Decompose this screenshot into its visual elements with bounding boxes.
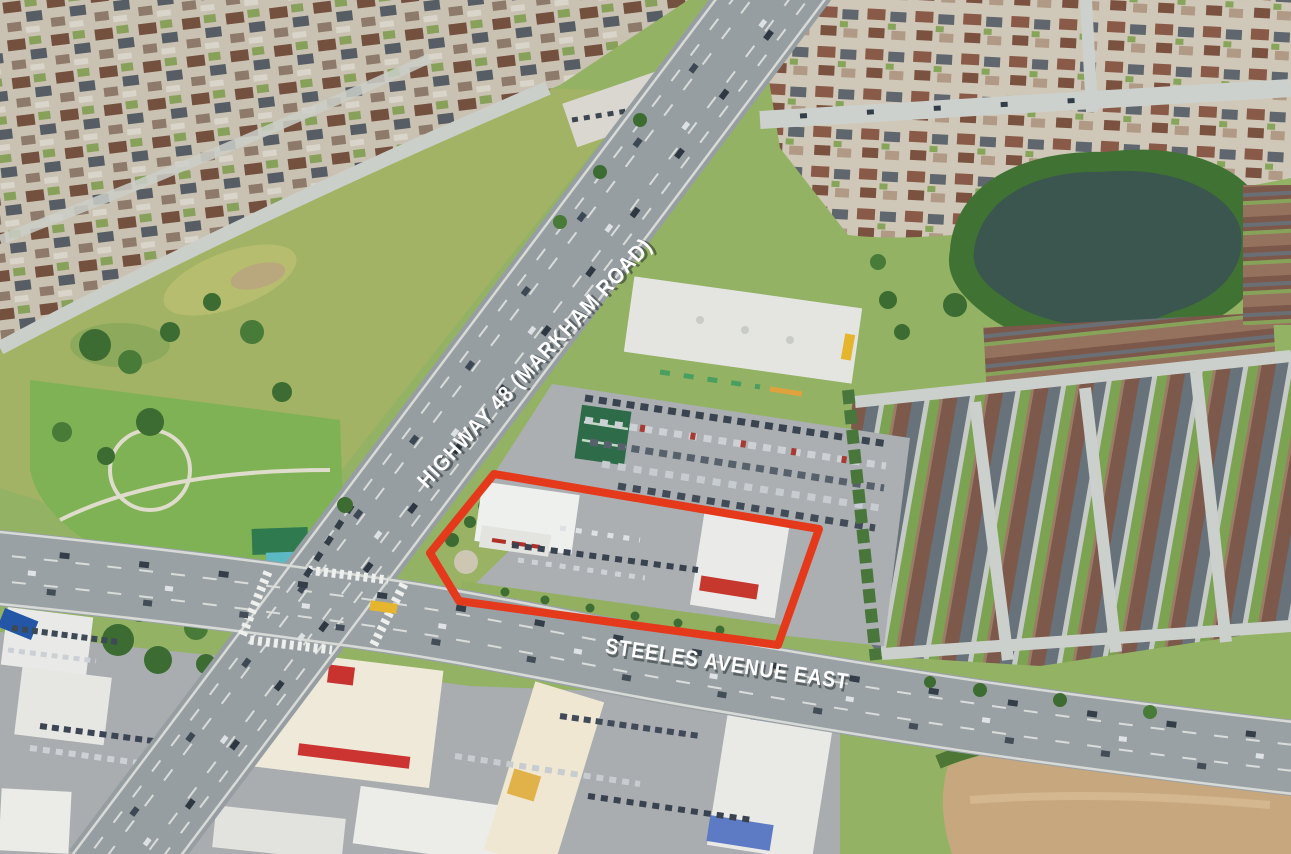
tree [118,350,142,374]
tree [240,320,264,344]
tree [593,165,607,179]
tree [464,516,476,528]
tree [924,676,936,688]
shrub [501,588,510,597]
rooftop-unit [741,326,749,334]
tree [879,291,897,309]
townhouses-east [846,352,1291,666]
tree [553,215,567,229]
tree [870,254,886,270]
tree [144,646,172,674]
tree [272,382,292,402]
garden-centre-canopy [574,405,631,465]
tree [52,422,72,442]
tree [1143,705,1157,719]
shrub [541,596,550,605]
residential-road [1086,0,1092,112]
rooftop-unit [786,336,794,344]
aerial-scene: HIGHWAY 48 (MARKHAM ROAD) HIGHWAY 48 (MA… [0,0,1291,854]
tree [633,113,647,127]
shrub [674,619,683,628]
courtyard [454,550,478,574]
tree [160,322,180,342]
tree [894,324,910,340]
white-building-roof [14,667,112,745]
tree [337,497,353,513]
tree [203,293,221,311]
aerial-photo: HIGHWAY 48 (MARKHAM ROAD) HIGHWAY 48 (MA… [0,0,1291,854]
red-rooftop-box [327,664,355,685]
white-building-roof [0,788,72,854]
tree [973,683,987,697]
rowhouses [1243,185,1291,325]
rooftop-unit [696,316,704,324]
tree [79,329,111,361]
tree [97,447,115,465]
tree [943,293,967,317]
shrub [631,612,640,621]
tree [136,408,164,436]
tree [1053,693,1067,707]
shrub [586,604,595,613]
